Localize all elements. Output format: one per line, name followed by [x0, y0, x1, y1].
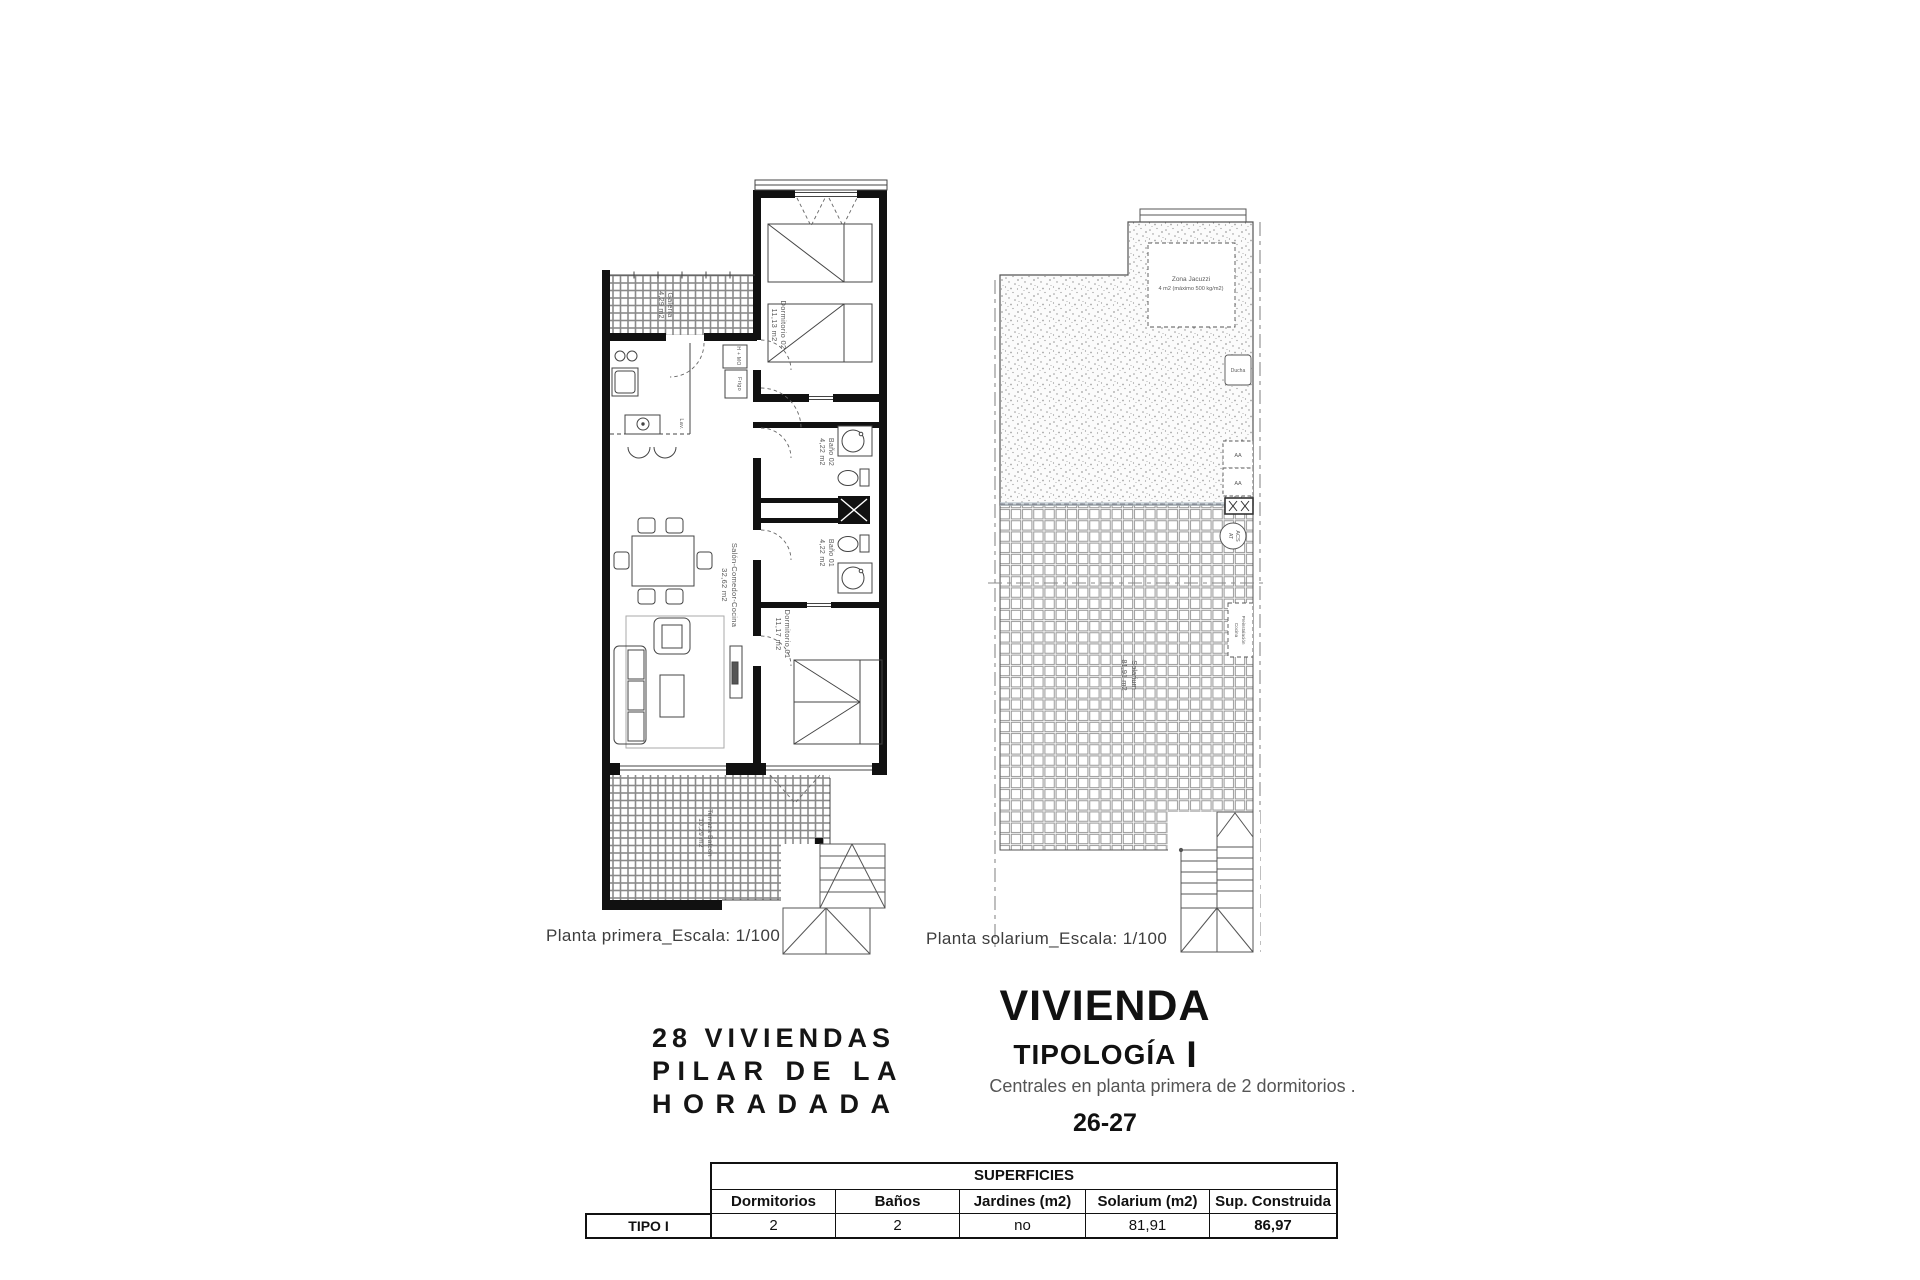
- floorplan-planta-solarium: Zona Jacuzzi 4 m2 (máximo 500 kg/m2) Duc…: [988, 195, 1268, 960]
- galeria-area: 4,29 m2: [657, 291, 664, 318]
- superficies-table: SUPERFICIES Dormitorios Baños Jardines (…: [585, 1162, 1338, 1239]
- col-header-dormitorios: Dormitorios: [712, 1190, 836, 1213]
- acs-unit: ACS AT: [1220, 523, 1246, 549]
- row-label-tipo: TIPO I: [585, 1213, 712, 1239]
- transition-strip: [1000, 502, 1253, 506]
- preinst-label-2: Cocina: [1234, 623, 1239, 638]
- aa2-label: AA: [1234, 481, 1242, 487]
- project-line-2: PILAR DE LA: [652, 1055, 892, 1088]
- galeria-label: Galería: [666, 292, 673, 317]
- vivienda-description: Centrales en planta primera de 2 dormito…: [985, 1076, 1360, 1097]
- superficies-table-body: SUPERFICIES Dormitorios Baños Jardines (…: [710, 1162, 1338, 1239]
- kitchen-fixtures: [610, 343, 747, 458]
- project-line-3: HORADADA: [652, 1088, 892, 1121]
- stairs-solarium: [1168, 812, 1260, 952]
- terraza-label: Terraza Balcón: [706, 809, 713, 857]
- top-ledge: [1140, 209, 1246, 222]
- tipologia-mark: I: [1186, 1034, 1196, 1075]
- vent-box: [1225, 498, 1253, 514]
- table-title: SUPERFICIES: [712, 1164, 1336, 1190]
- value-dormitorios: 2: [712, 1214, 836, 1237]
- tipologia-label: TIPOLOGÍA: [1013, 1039, 1176, 1070]
- ducha-box: Ducha: [1225, 355, 1251, 385]
- table-header-row: Dormitorios Baños Jardines (m2) Solarium…: [712, 1190, 1336, 1214]
- stairs-primera: [781, 844, 887, 956]
- bano01-label: Baño 01: [827, 539, 834, 567]
- internal-window: [807, 602, 831, 608]
- salon-furniture: [614, 518, 742, 748]
- col-header-jardines: Jardines (m2): [960, 1190, 1086, 1213]
- solarium-label-group: Solarium 81,91 m2: [1120, 659, 1139, 690]
- value-jardines: no: [960, 1214, 1086, 1237]
- bano01-area: 4,22 m2: [818, 539, 825, 566]
- col-header-banos: Baños: [836, 1190, 960, 1213]
- col-header-sup-construida: Sup. Construida: [1210, 1190, 1336, 1213]
- ducha-label: Ducha: [1231, 368, 1246, 374]
- value-banos: 2: [836, 1214, 960, 1237]
- bano02-label: Baño 02: [827, 438, 834, 466]
- value-solarium: 81,91: [1086, 1214, 1210, 1237]
- dorm01-label: Dormitorio 01: [783, 610, 792, 659]
- floorplan-planta-primera: Galería 4,29 m2 Dormitorio 02 11,13 m2 B…: [598, 178, 898, 968]
- dorm02-label: Dormitorio 02: [779, 301, 788, 350]
- jacuzzi-spec: 4 m2 (máximo 500 kg/m2): [1159, 286, 1224, 292]
- fridge-label: Frigo: [736, 377, 742, 391]
- bano02-area: 4,22 m2: [818, 438, 825, 465]
- washer-label: Lav.: [678, 418, 684, 429]
- oven-label: H + MO: [735, 346, 741, 365]
- aa1-label: AA: [1234, 453, 1242, 459]
- plan-sheet: Galería 4,29 m2 Dormitorio 02 11,13 m2 B…: [0, 0, 1920, 1280]
- galeria-floor-hatch: [610, 275, 757, 335]
- dorm01-area: 11,17 m2: [774, 617, 783, 650]
- unit-numbers: 26-27: [955, 1109, 1255, 1138]
- jacuzzi-label: Zona Jacuzzi: [1172, 276, 1210, 283]
- vivienda-title: VIVIENDA: [955, 982, 1255, 1031]
- col-header-solarium: Solarium (m2): [1086, 1190, 1210, 1213]
- acs-label-2: AT: [1227, 533, 1233, 539]
- dorm01-bed: [794, 660, 882, 744]
- project-title: 28 VIVIENDAS PILAR DE LA HORADADA: [652, 1022, 892, 1121]
- salon-area: 32,62 m2: [720, 568, 729, 602]
- caption-planta-solarium: Planta solarium_Escala: 1/100: [926, 929, 1167, 949]
- tipologia-line: TIPOLOGÍAI: [955, 1034, 1255, 1076]
- acs-label: ACS: [1234, 530, 1240, 542]
- preinstalacion-box: Preinstalación Cocina: [1228, 603, 1253, 657]
- shaft: [838, 496, 870, 524]
- terraza-area: 10,29 m2: [697, 818, 704, 848]
- value-sup-construida: 86,97: [1210, 1214, 1336, 1237]
- table-value-row: 2 2 no 81,91 86,97: [712, 1214, 1336, 1237]
- dorm02-area: 11,13 m2: [770, 308, 779, 341]
- solarium-area: 81,91 m2: [1120, 659, 1129, 690]
- preinst-label-1: Preinstalación: [1241, 616, 1246, 645]
- aa-units: AA AA: [1223, 441, 1253, 496]
- jacuzzi-zone: Zona Jacuzzi 4 m2 (máximo 500 kg/m2): [1148, 243, 1235, 327]
- salon-label: Salón-Comedor-Cocina: [730, 543, 739, 628]
- solarium-label: Solarium: [1130, 660, 1139, 690]
- caption-planta-primera: Planta primera_Escala: 1/100: [546, 926, 780, 946]
- project-line-1: 28 VIVIENDAS: [652, 1022, 892, 1055]
